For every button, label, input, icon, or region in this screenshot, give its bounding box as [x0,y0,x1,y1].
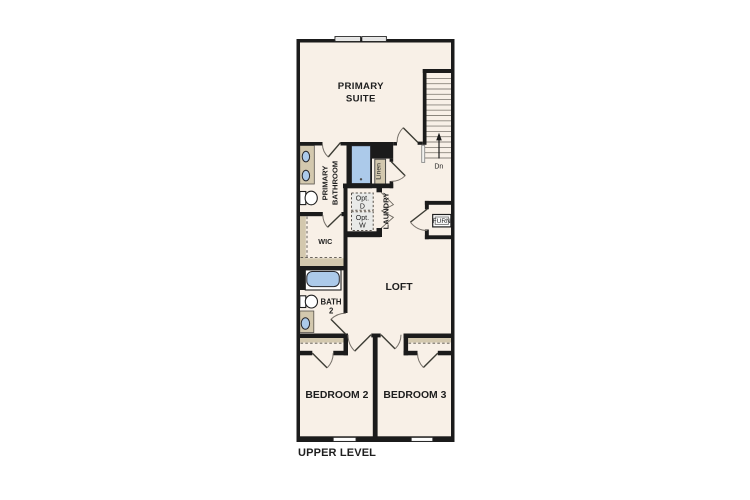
svg-text:Opt.: Opt. [356,215,369,222]
svg-text:BEDROOM 2: BEDROOM 2 [305,390,368,401]
svg-text:D: D [360,203,365,210]
svg-text:PRIMARY: PRIMARY [321,166,330,201]
svg-text:UPPER LEVEL: UPPER LEVEL [298,447,376,459]
svg-text:LOFT: LOFT [385,282,413,293]
svg-text:LAUNDRY: LAUNDRY [381,193,390,230]
svg-text:FURN: FURN [433,218,451,225]
svg-text:BATHROOM: BATHROOM [331,161,340,205]
svg-text:2: 2 [329,307,334,316]
svg-text:SUITE: SUITE [346,93,376,104]
svg-text:BEDROOM 3: BEDROOM 3 [383,390,446,401]
svg-text:Linen: Linen [376,163,383,180]
svg-text:Dn: Dn [434,163,443,170]
svg-text:BATH: BATH [320,298,341,307]
svg-text:WIC: WIC [318,237,332,246]
svg-text:PRIMARY: PRIMARY [338,81,384,92]
svg-text:Opt.: Opt. [356,196,369,203]
svg-text:W: W [359,223,366,230]
